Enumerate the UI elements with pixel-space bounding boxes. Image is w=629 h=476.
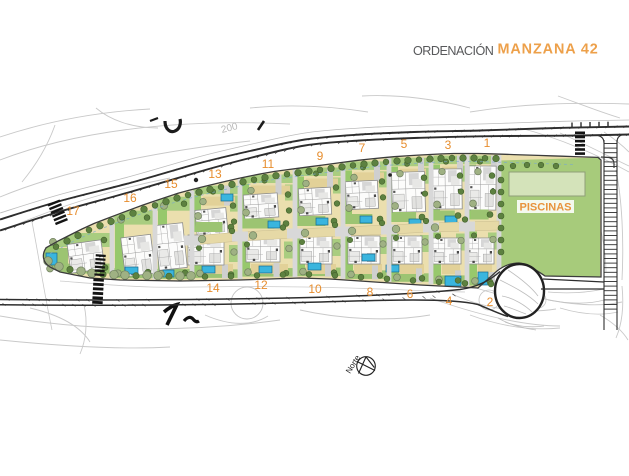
svg-text:11: 11 <box>262 157 275 171</box>
svg-text:15: 15 <box>164 177 178 191</box>
svg-text:3: 3 <box>445 138 452 152</box>
svg-text:7: 7 <box>359 141 366 155</box>
svg-text:ORDENACIÓN: ORDENACIÓN <box>413 43 494 58</box>
svg-text:PISCINAS: PISCINAS <box>520 202 572 214</box>
svg-text:14: 14 <box>206 281 220 295</box>
svg-text:1: 1 <box>484 136 491 150</box>
svg-text:10: 10 <box>308 282 322 296</box>
svg-text:12: 12 <box>254 278 268 292</box>
svg-text:200: 200 <box>220 121 239 136</box>
svg-text:6: 6 <box>407 287 414 301</box>
svg-text:4: 4 <box>446 294 453 308</box>
svg-text:8: 8 <box>367 285 374 299</box>
svg-text:2: 2 <box>487 295 494 309</box>
svg-text:MANZANA 42: MANZANA 42 <box>498 42 599 58</box>
svg-text:5: 5 <box>401 137 408 151</box>
svg-text:17: 17 <box>66 204 80 218</box>
svg-text:13: 13 <box>208 167 222 181</box>
svg-text:9: 9 <box>317 149 324 163</box>
svg-text:16: 16 <box>123 191 137 205</box>
